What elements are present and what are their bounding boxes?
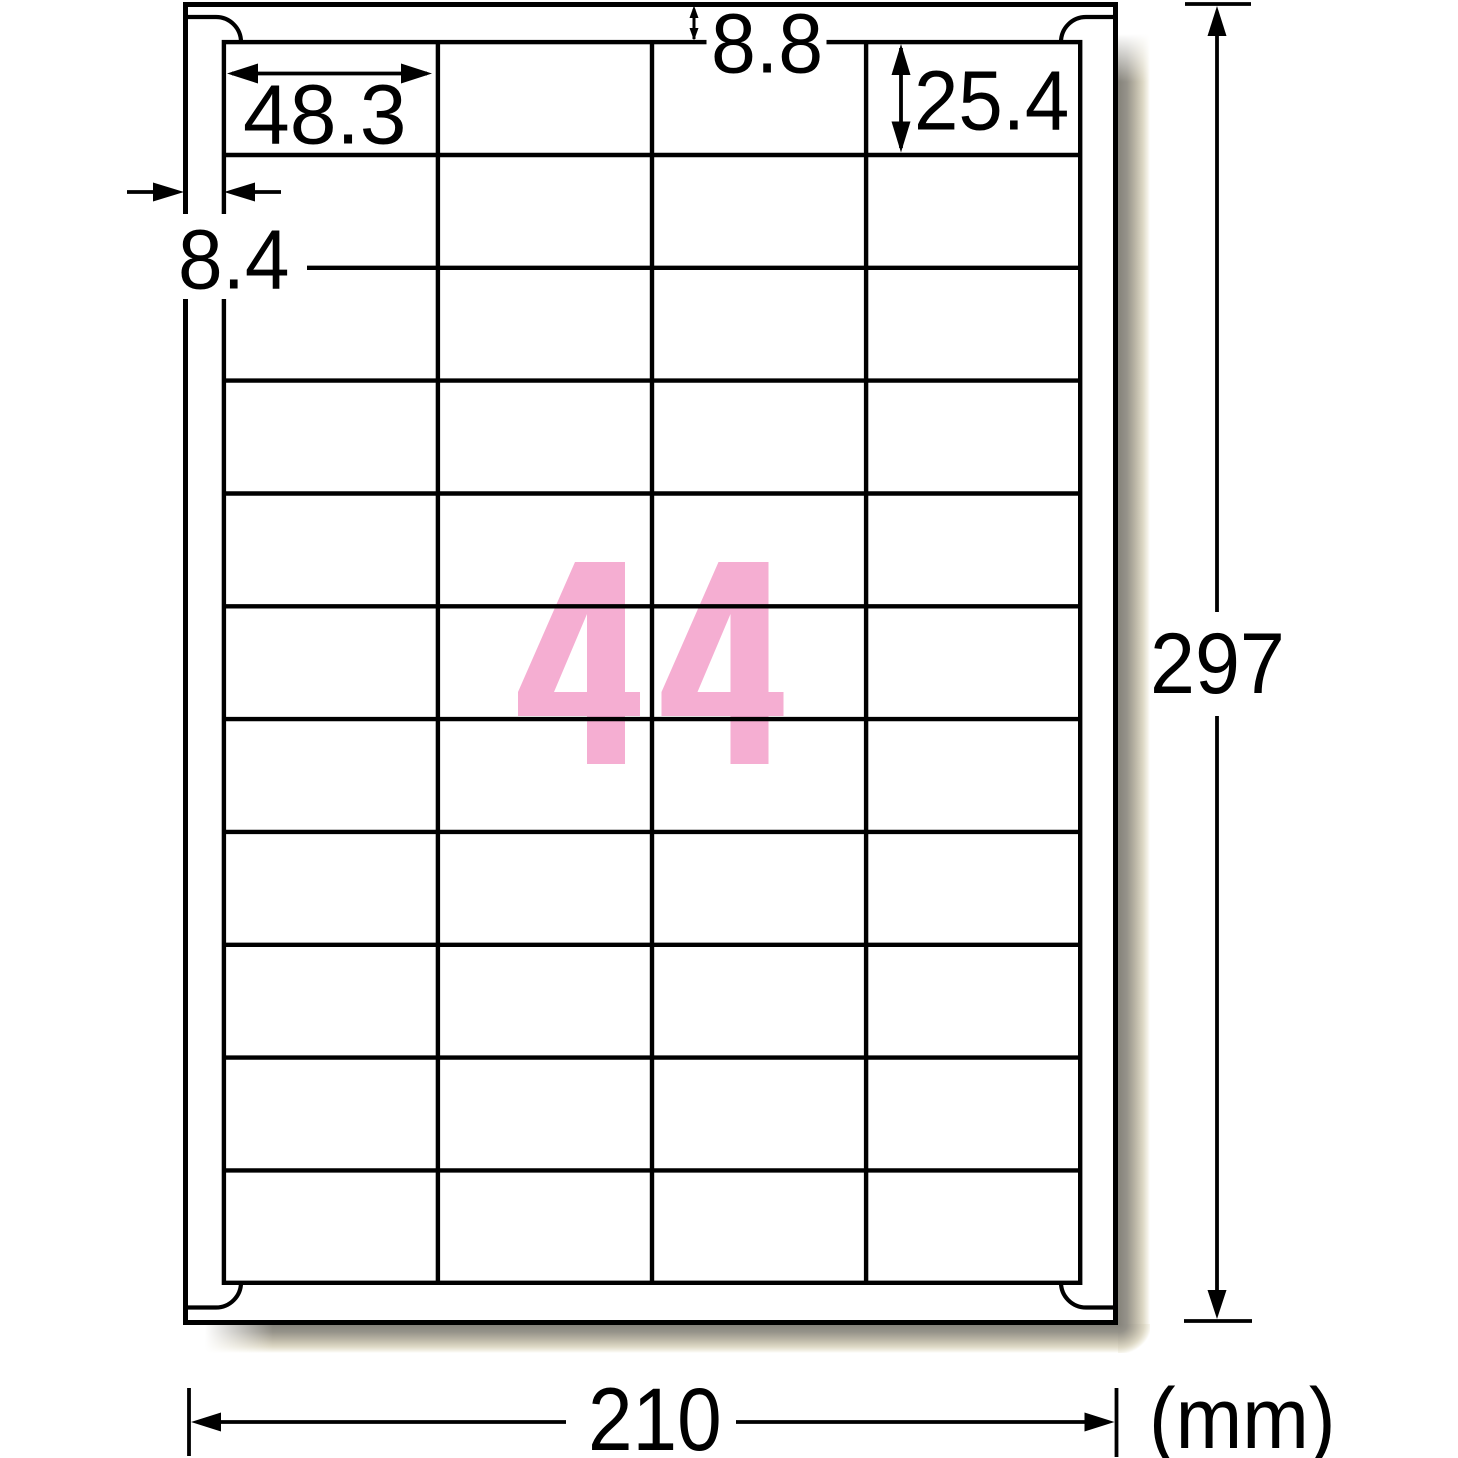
svg-text:25.4: 25.4 (914, 55, 1069, 148)
svg-text:8.4: 8.4 (178, 214, 290, 307)
svg-text:210: 210 (588, 1369, 722, 1458)
svg-text:8.8: 8.8 (711, 0, 823, 91)
svg-text:48.3: 48.3 (243, 68, 407, 162)
svg-text:(mm): (mm) (1149, 1370, 1335, 1458)
svg-text:297: 297 (1150, 615, 1285, 712)
